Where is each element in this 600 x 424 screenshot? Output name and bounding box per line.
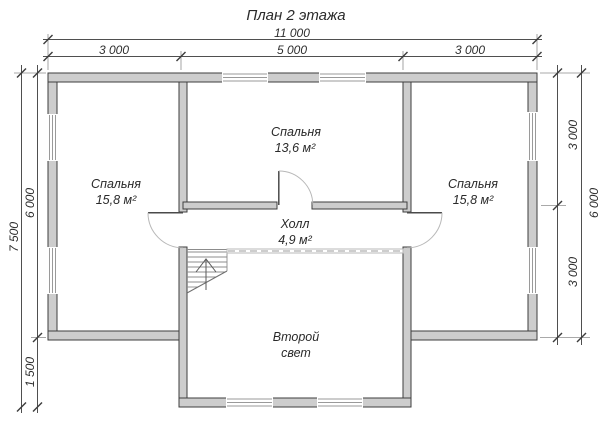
dim-left-total: 7 500 [7,222,21,252]
dim-top-total: 11 000 [274,26,310,40]
wall-center-bottom [179,398,411,407]
door-right-bedroom [407,213,442,248]
wall-interior-right-upper [403,82,411,212]
room-area: 15,8 м² [453,193,494,207]
staircase [187,250,227,294]
dim-left-lower: 1 500 [23,357,37,387]
door-center-bedroom [279,171,313,205]
room-name: Холл [280,217,310,231]
room-label-hall: Холл 4,9 м² [278,217,312,247]
dim-top-center: 5 000 [277,43,307,57]
wall-top [48,73,537,82]
room-name: Спальня [448,177,498,191]
room-area: 13,6 м² [275,141,316,155]
wall-interior-right-lower [403,247,411,398]
room-area: 4,9 м² [278,233,312,247]
floor-plan-svg: План 2 этажа 11 000 3 000 5 000 3 000 7 … [0,0,600,424]
room-area: 15,8 м² [96,193,137,207]
dim-right-upper: 3 000 [566,120,580,150]
dim-top-left: 3 000 [99,43,129,57]
floor-plan-drawing: План 2 этажа 11 000 3 000 5 000 3 000 7 … [0,0,600,424]
room-name-line1: Второй [273,330,319,344]
room-label-bedroom-left: Спальня 15,8 м² [91,177,141,207]
room-label-bedroom-right: Спальня 15,8 м² [448,177,498,207]
door-left-bedroom [148,213,183,248]
room-label-second-light: Второй свет [273,330,319,360]
void-railing [227,249,403,253]
window [47,247,58,294]
dim-right-lower: 3 000 [566,257,580,287]
stairs-up-arrow-icon [196,259,216,290]
page-title: План 2 этажа [246,7,345,24]
window [47,114,58,161]
dim-top-right: 3 000 [455,43,485,57]
window [317,397,363,408]
window [527,247,538,294]
dim-left-upper: 6 000 [23,188,37,218]
wall-interior-left-lower [179,247,187,398]
dim-right-total: 6 000 [587,188,600,218]
wall-hall-top-left [183,202,277,209]
window [226,397,273,408]
wall-right-wing-bottom [406,331,537,340]
room-name-line2: свет [281,346,311,360]
room-label-bedroom-center: Спальня 13,6 м² [271,125,321,155]
room-name: Спальня [271,125,321,139]
window [319,72,366,83]
wall-interior-left-upper [179,82,187,212]
room-name: Спальня [91,177,141,191]
wall-left-wing-bottom [48,331,181,340]
window [527,112,538,161]
window [222,72,268,83]
wall-hall-top-right [312,202,407,209]
